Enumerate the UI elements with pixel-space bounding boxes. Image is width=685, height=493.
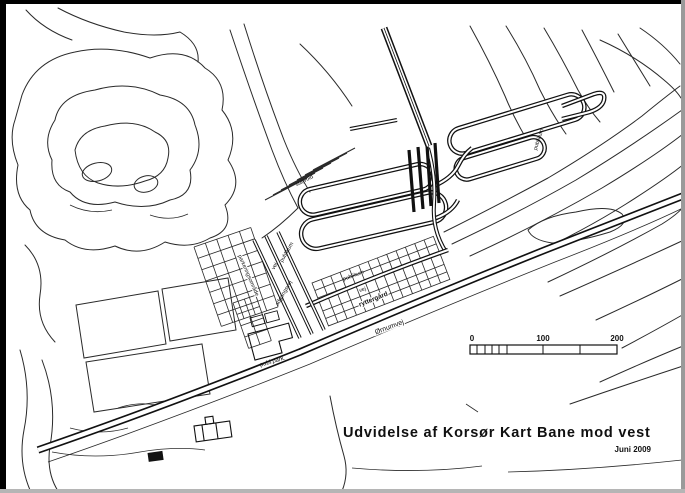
- paddock-grid: [312, 236, 450, 326]
- scale-tick-200: 200: [610, 334, 624, 343]
- kart-track-connectors: [428, 148, 472, 252]
- label-parkering: parkeringsområde: [236, 254, 260, 297]
- map-title: Udvidelse af Korsør Kart Bane mod vest: [343, 425, 651, 441]
- kart-track-west-loops: [291, 160, 449, 252]
- scale-tick-0: 0: [470, 334, 475, 343]
- contour-southwest: [20, 245, 205, 491]
- kart-track-east-loops: [444, 91, 604, 182]
- road-oernumvej: [38, 196, 683, 462]
- south-buildings: [148, 414, 232, 462]
- map-page: publikum vej adgangsvej parkeringsområde…: [0, 0, 685, 493]
- map-date: Juni 2009: [615, 445, 652, 454]
- contour-hills-west: [12, 8, 352, 251]
- scale-tick-100: 100: [536, 334, 550, 343]
- site-plan-map: publikum vej adgangsvej parkeringsområde…: [0, 0, 685, 493]
- scale-bar: 0 100 200: [470, 334, 624, 354]
- contour-south: [330, 396, 682, 491]
- north-access-road: [350, 28, 429, 146]
- scan-frame: [0, 0, 685, 493]
- label-vej-mid: vej: [358, 286, 367, 294]
